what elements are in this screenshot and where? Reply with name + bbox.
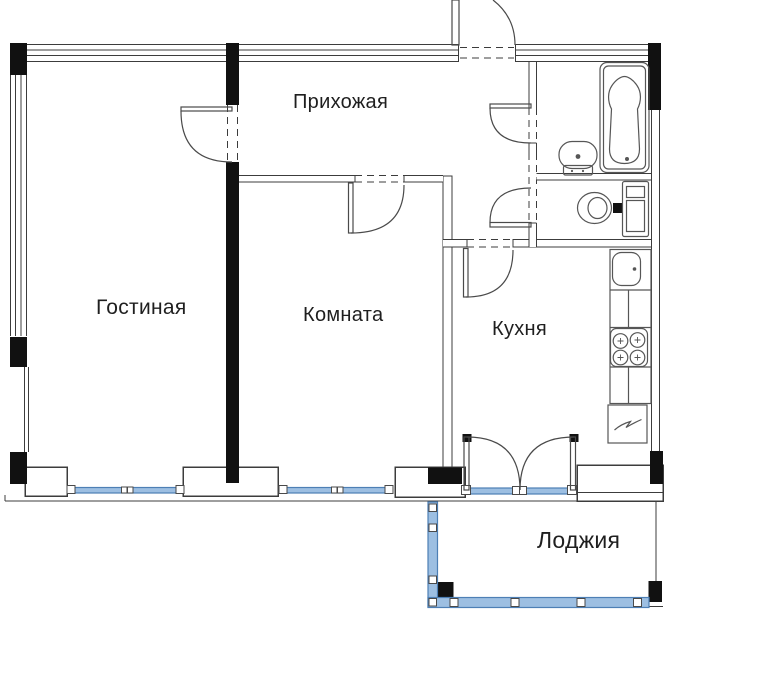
toilet-tank <box>613 203 622 213</box>
kitchen-door-leaf <box>464 249 469 298</box>
left-wall-lines <box>11 75 27 336</box>
entrance-jambs <box>459 44 516 62</box>
window-mullion <box>577 599 585 607</box>
entrance-door-swing <box>493 0 515 45</box>
bathroom-door-leaf <box>490 104 531 108</box>
room-label-living-room: Гостиная <box>96 296 187 320</box>
balcony-door-swing-left <box>467 437 520 490</box>
window-mullion <box>67 486 75 494</box>
window-mullion <box>128 487 134 493</box>
kitchen-counter <box>610 250 651 404</box>
toilet-door-leaf <box>490 223 531 228</box>
room-label-hallway: Прихожая <box>293 91 388 114</box>
room-label-room: Комната <box>303 304 383 327</box>
washing-machine-panel <box>627 187 645 198</box>
bottom-wall-outer-line <box>5 495 663 501</box>
living-door-opening <box>228 105 238 162</box>
wall-block-loggia-left <box>438 582 454 599</box>
toilet-icon <box>578 193 623 224</box>
wall-block-bottom-right <box>650 451 663 484</box>
wall-block-left-bottom <box>10 452 27 484</box>
wall-hallway-bath <box>529 62 537 247</box>
wall-hallway-kitchen <box>443 240 651 248</box>
window-mullion <box>279 486 287 494</box>
window-mullion <box>429 599 437 607</box>
bathtub-outer <box>600 63 649 173</box>
loggia-glazing-left <box>428 502 438 607</box>
room-door-swing <box>351 185 404 233</box>
wall-block-loggia-right <box>649 581 663 602</box>
window-mullion <box>429 524 437 532</box>
balcony-door-leaf-right <box>571 437 576 490</box>
refrigerator-body <box>608 405 647 443</box>
center-bearing-wall <box>226 162 239 483</box>
counter-outline <box>610 250 651 404</box>
stove-icon <box>611 329 648 367</box>
bathtub-icon <box>600 63 649 173</box>
window-mullion <box>122 487 128 493</box>
room-door-leaf <box>349 183 354 233</box>
fixtures <box>559 63 651 444</box>
floor-plan: Прихожая Гостиная Комната Кухня Лоджия <box>0 0 770 688</box>
bathroom-door-swing <box>490 108 531 143</box>
balcony-door-swing-right <box>520 437 574 490</box>
living-room-door-swing <box>181 111 232 162</box>
kitchen-door-swing <box>466 250 513 297</box>
washbasin-icon <box>559 142 597 176</box>
bathtub-basin <box>609 77 641 164</box>
pier <box>25 467 67 496</box>
window-mullion <box>450 599 458 607</box>
wall-block-center-top <box>226 43 239 105</box>
bathtub-drain <box>625 157 629 161</box>
window-mullion <box>176 486 184 494</box>
wall-block-pier <box>428 468 462 485</box>
toilet-door-swing <box>490 188 531 223</box>
refrigerator-mark <box>615 420 642 431</box>
window-mullion <box>429 576 437 584</box>
wall-block-left-mid <box>10 337 27 367</box>
loggia-glazing-bottom <box>428 598 649 608</box>
washing-machine-drum <box>627 201 645 232</box>
window-mullion <box>634 599 642 607</box>
window-mullion <box>332 487 338 493</box>
wall-bath-toilet <box>537 174 652 181</box>
room-label-kitchen: Кухня <box>492 318 547 341</box>
living-room-door-leaf <box>181 107 232 111</box>
washbasin-dot <box>582 170 584 172</box>
kitchen-sink-faucet <box>633 267 637 271</box>
washbasin-dot <box>571 170 573 172</box>
toilet-bowl-inner <box>588 198 607 219</box>
top-wall-lines <box>27 45 648 62</box>
bottom-wall-piers <box>25 465 663 501</box>
wall-block-top-left <box>10 43 27 75</box>
washbasin-faucet <box>576 154 581 159</box>
left-wall-lower <box>25 367 29 452</box>
window-mullion <box>513 487 520 495</box>
entrance-door-leaf <box>452 0 459 45</box>
window-mullion <box>385 486 393 494</box>
wall-block-top-right <box>648 43 661 110</box>
interior-walls <box>239 62 651 467</box>
wall-hallway-room <box>239 176 443 183</box>
window-mullion <box>338 487 344 493</box>
refrigerator-icon <box>608 405 647 443</box>
washing-machine-icon <box>623 182 649 237</box>
window-mullion <box>429 504 437 512</box>
window-mullion <box>511 599 519 607</box>
right-wall-lines <box>652 110 660 452</box>
room-label-loggia: Лоджия <box>537 527 620 554</box>
entrance-opening-dashes <box>460 48 514 59</box>
wall-room-kitchen <box>443 176 452 467</box>
